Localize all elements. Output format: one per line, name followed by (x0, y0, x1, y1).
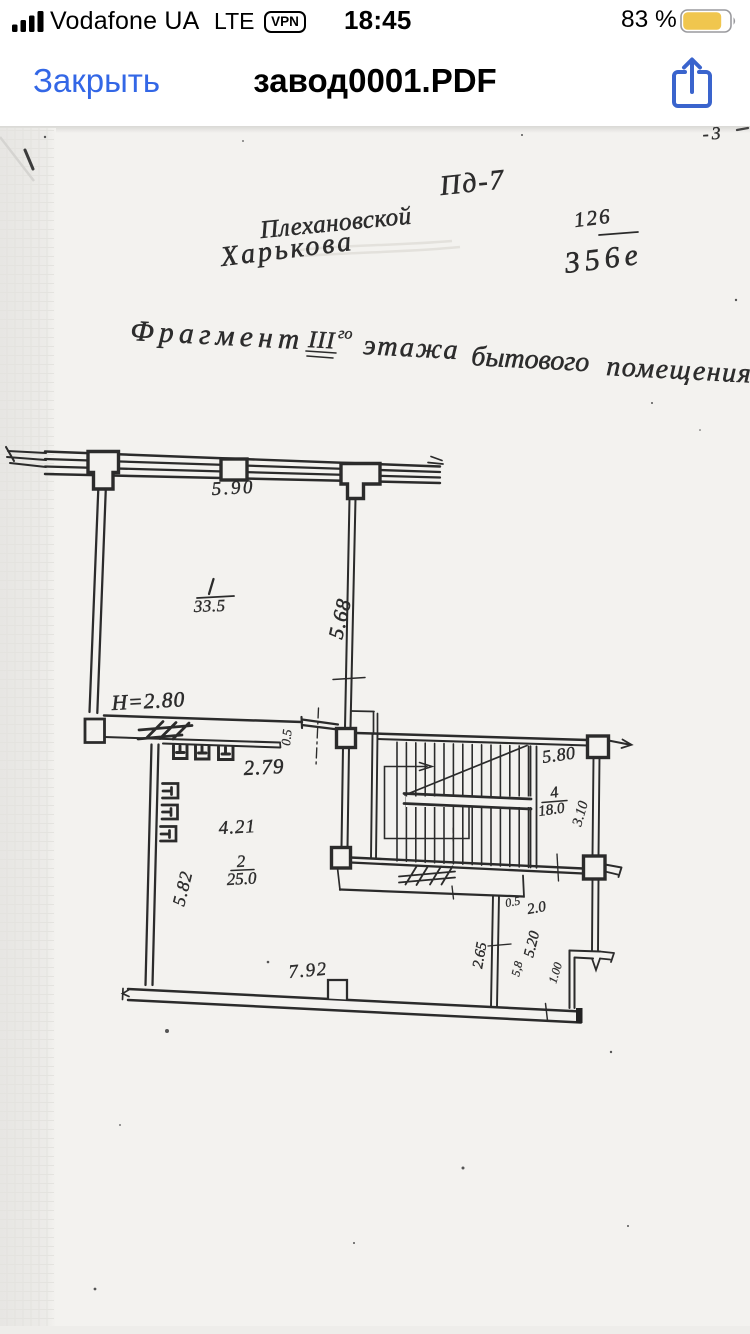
svg-text:-3: -3 (702, 123, 724, 144)
svg-text:2.79: 2.79 (243, 754, 285, 780)
svg-text:2.0: 2.0 (526, 899, 548, 918)
svg-text:III: III (307, 327, 336, 354)
svg-text:33.5: 33.5 (192, 596, 225, 616)
svg-text:25.0: 25.0 (226, 868, 257, 889)
svg-text:Н=2.80: Н=2.80 (110, 687, 186, 715)
svg-text:го: го (338, 325, 353, 343)
svg-text:0.5: 0.5 (278, 728, 295, 746)
svg-text:5.90: 5.90 (211, 477, 255, 500)
svg-text:126: 126 (573, 204, 613, 232)
svg-text:бытового: бытового (471, 341, 590, 378)
svg-text:0.5: 0.5 (504, 894, 521, 910)
svg-text:4.21: 4.21 (218, 816, 256, 839)
svg-text:7.92: 7.92 (288, 959, 329, 983)
svg-text:этажа: этажа (363, 330, 461, 366)
